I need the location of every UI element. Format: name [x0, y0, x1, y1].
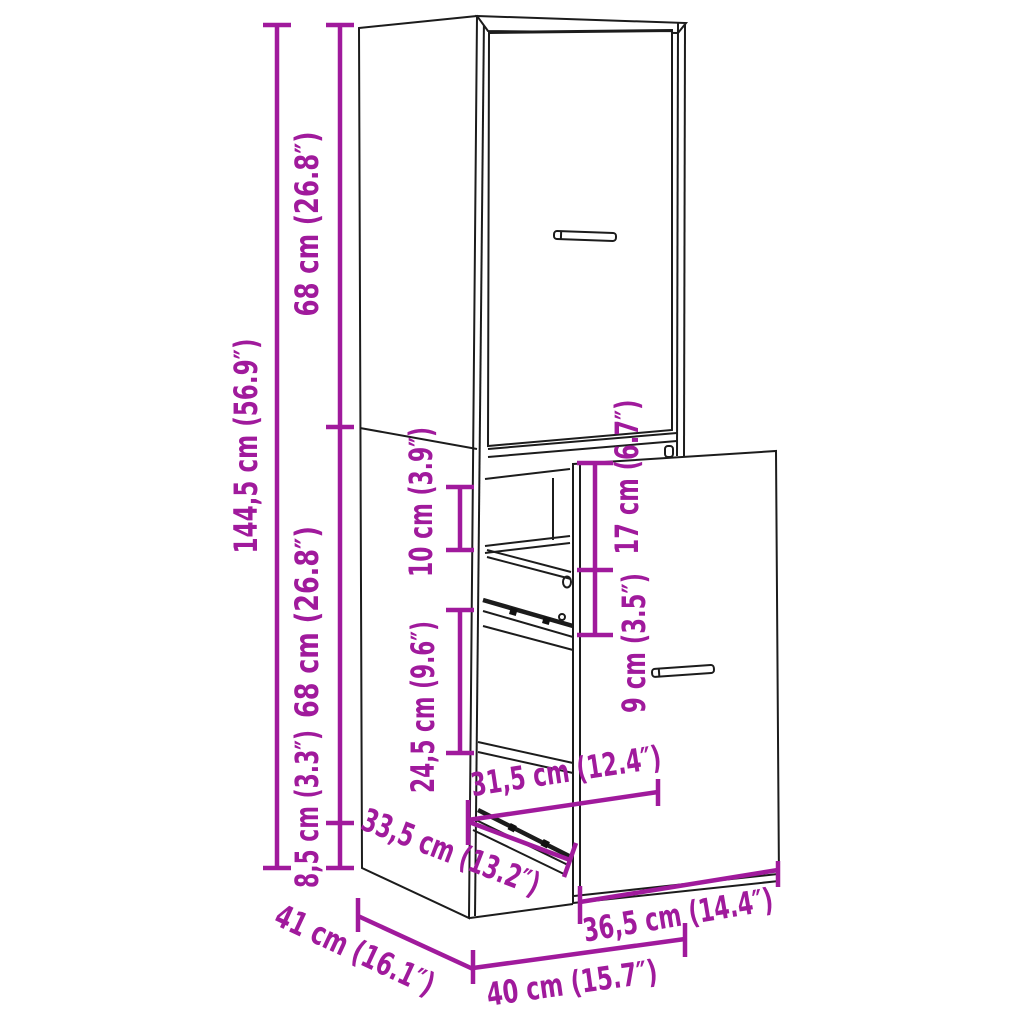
rail-screw-hole	[559, 614, 565, 620]
dim-base-section-label: 8,5 cm (3.3″)	[288, 730, 326, 888]
door-handle-bar	[554, 231, 616, 241]
right-front-edge-inner-line	[684, 24, 685, 456]
door-catch	[665, 446, 673, 457]
diagram-svg: 144,5 cm (56.9″) 68 cm (26.8″) 68 cm (26…	[0, 0, 1024, 1024]
dimension-diagram: 144,5 cm (56.9″) 68 cm (26.8″) 68 cm (26…	[0, 0, 1024, 1024]
dim-total-height: 144,5 cm (56.9″)	[227, 25, 291, 868]
opening-top-interior-line	[485, 469, 570, 479]
dim-total-height-label: 144,5 cm (56.9″)	[227, 339, 265, 554]
upper-door	[488, 31, 672, 446]
bottom-front-edge	[470, 904, 573, 918]
dim-shelf-gap-label: 10 cm (3.9″)	[402, 427, 440, 577]
dim-upper-section-label: 68 cm (26.8″)	[288, 132, 326, 317]
upper-slide-rail	[483, 600, 573, 626]
dim-drawer-lower-label: 9 cm (3.5″)	[615, 573, 653, 713]
dim-drawer-top-label: 17 cm (6.7″)	[608, 400, 646, 555]
door-handle-icon	[554, 231, 616, 241]
dim-section-heights: 68 cm (26.8″) 68 cm (26.8″) 8,5 cm (3.3″…	[288, 25, 354, 888]
dim-overall-depth-label: 41 cm (16.1″)	[269, 896, 441, 1003]
drawer-handle-standoff-line	[659, 669, 660, 677]
dim-lower-gap-label: 24,5 cm (9.6″)	[404, 621, 442, 793]
dim-middle-section-label: 68 cm (26.8″)	[288, 526, 326, 718]
drawer-front-panel	[573, 451, 779, 903]
dim-overall-depth: 41 cm (16.1″)	[269, 896, 473, 1003]
upper-slide-assembly-bottom-line	[483, 626, 573, 650]
right-front-edge-outer-line	[677, 23, 678, 456]
pullout-drawer-front	[573, 451, 779, 903]
